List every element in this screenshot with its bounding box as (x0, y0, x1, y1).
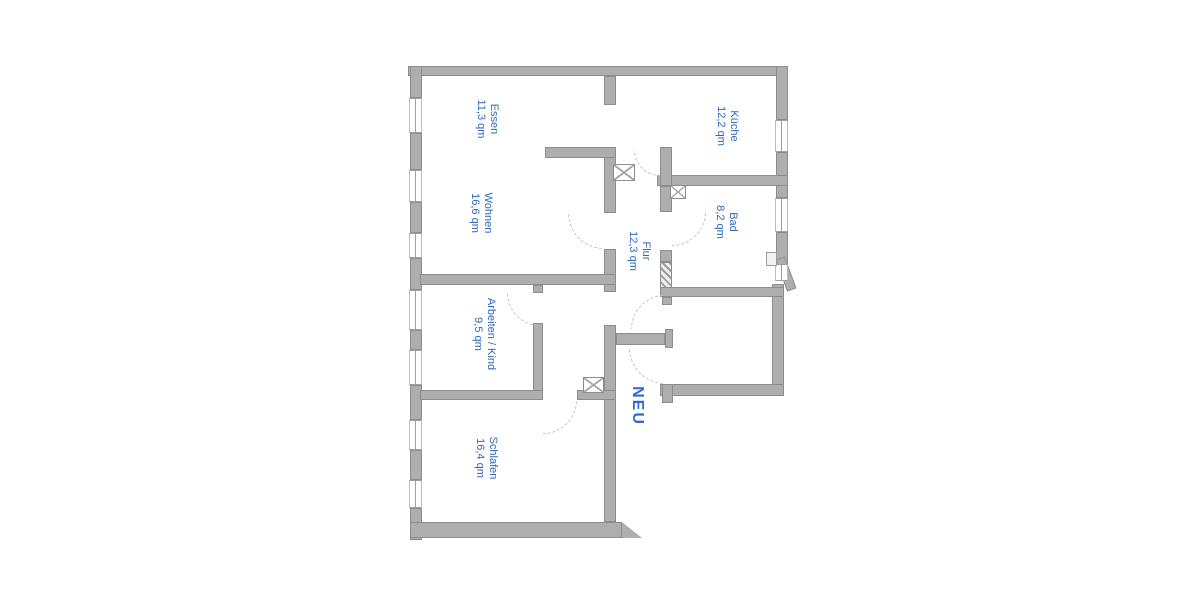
room-area-arbeiten: 9,5 qm (471, 279, 484, 389)
window-9 (775, 198, 788, 232)
wall-bottom-exterior (410, 522, 622, 538)
wall-right-room-bottom (660, 384, 784, 396)
room-label-arbeiten: Arbeiten / Kind9,5 qm (469, 279, 497, 389)
room-name-flur: Flur (639, 196, 652, 306)
bad-vent (766, 252, 777, 266)
room-area-schlafen: 16,4 qm (473, 403, 486, 513)
room-label-wohnen: Wohnen16,6 qm (466, 158, 494, 268)
room-area-flur: 12,3 qm (626, 196, 639, 306)
wall-bad-left-mid (660, 250, 672, 262)
wall-right-room-stub-bottom (662, 384, 673, 403)
room-label-flur: Flur12,3 qm (624, 196, 652, 306)
window-1 (409, 98, 422, 133)
wall-left-exterior-7 (410, 450, 422, 480)
window-5 (409, 350, 422, 385)
window-10 (775, 264, 788, 281)
wall-bad-bottom (660, 287, 784, 297)
room-name-neu: NEU (628, 376, 646, 436)
room-label-bad: Bad8,2 qm (711, 167, 739, 277)
room-area-kueche: 12,2 qm (714, 71, 727, 181)
room-name-wohnen: Wohnen (481, 158, 494, 268)
room-label-schlafen: Schlafen16,4 qm (471, 403, 499, 513)
wall-bottom-exterior-flare (622, 522, 642, 538)
wall-left-exterior-5 (410, 330, 422, 350)
wall-right-room-right (772, 284, 784, 394)
wall-central-1 (604, 76, 616, 105)
floor-plan-canvas: Essen11,3 qmWohnen16,6 qmKüche12,2 qmBad… (0, 0, 1200, 600)
shaft-flur-kueche-icon (613, 164, 635, 181)
room-area-bad: 8,2 qm (713, 167, 726, 277)
wall-left-exterior-3 (410, 202, 422, 233)
room-label-kueche: Küche12,2 qm (712, 71, 740, 181)
wall-kueche-left (660, 147, 672, 186)
room-label-neu: NEU (626, 376, 646, 436)
wall-flur-t-stub (616, 333, 665, 345)
wall-central-3 (604, 249, 616, 292)
window-7 (409, 480, 422, 508)
room-area-wohnen: 16,6 qm (468, 158, 481, 268)
wall-arbeiten-right (533, 323, 543, 400)
door-arbeiten-swing-arc (507, 260, 573, 326)
wall-right-exterior-1 (776, 66, 788, 120)
wall-left-exterior-2 (410, 133, 422, 170)
wall-arbeiten-top (420, 274, 616, 285)
wall-right-room-jamb (665, 329, 673, 348)
window-4 (409, 290, 422, 330)
window-3 (409, 233, 422, 258)
shaft-schlafen-icon (583, 377, 604, 393)
room-name-kueche: Küche (727, 71, 740, 181)
wall-left-exterior-1 (410, 66, 422, 98)
room-name-schlafen: Schlafen (486, 403, 499, 513)
wall-schlafen-top-left (420, 390, 543, 400)
room-name-bad: Bad (726, 167, 739, 277)
wall-arbeiten-right-stub (533, 285, 543, 293)
wall-essen-wohnen-divider (545, 147, 616, 158)
window-8 (775, 120, 788, 152)
window-2 (409, 170, 422, 202)
window-6 (409, 420, 422, 450)
room-name-arbeiten: Arbeiten / Kind (484, 279, 497, 389)
door-schlafen-swing-arc (509, 366, 577, 434)
shaft-bad-icon (670, 185, 686, 199)
wall-central-4 (604, 325, 616, 522)
wall-bad-left-new (660, 262, 672, 290)
